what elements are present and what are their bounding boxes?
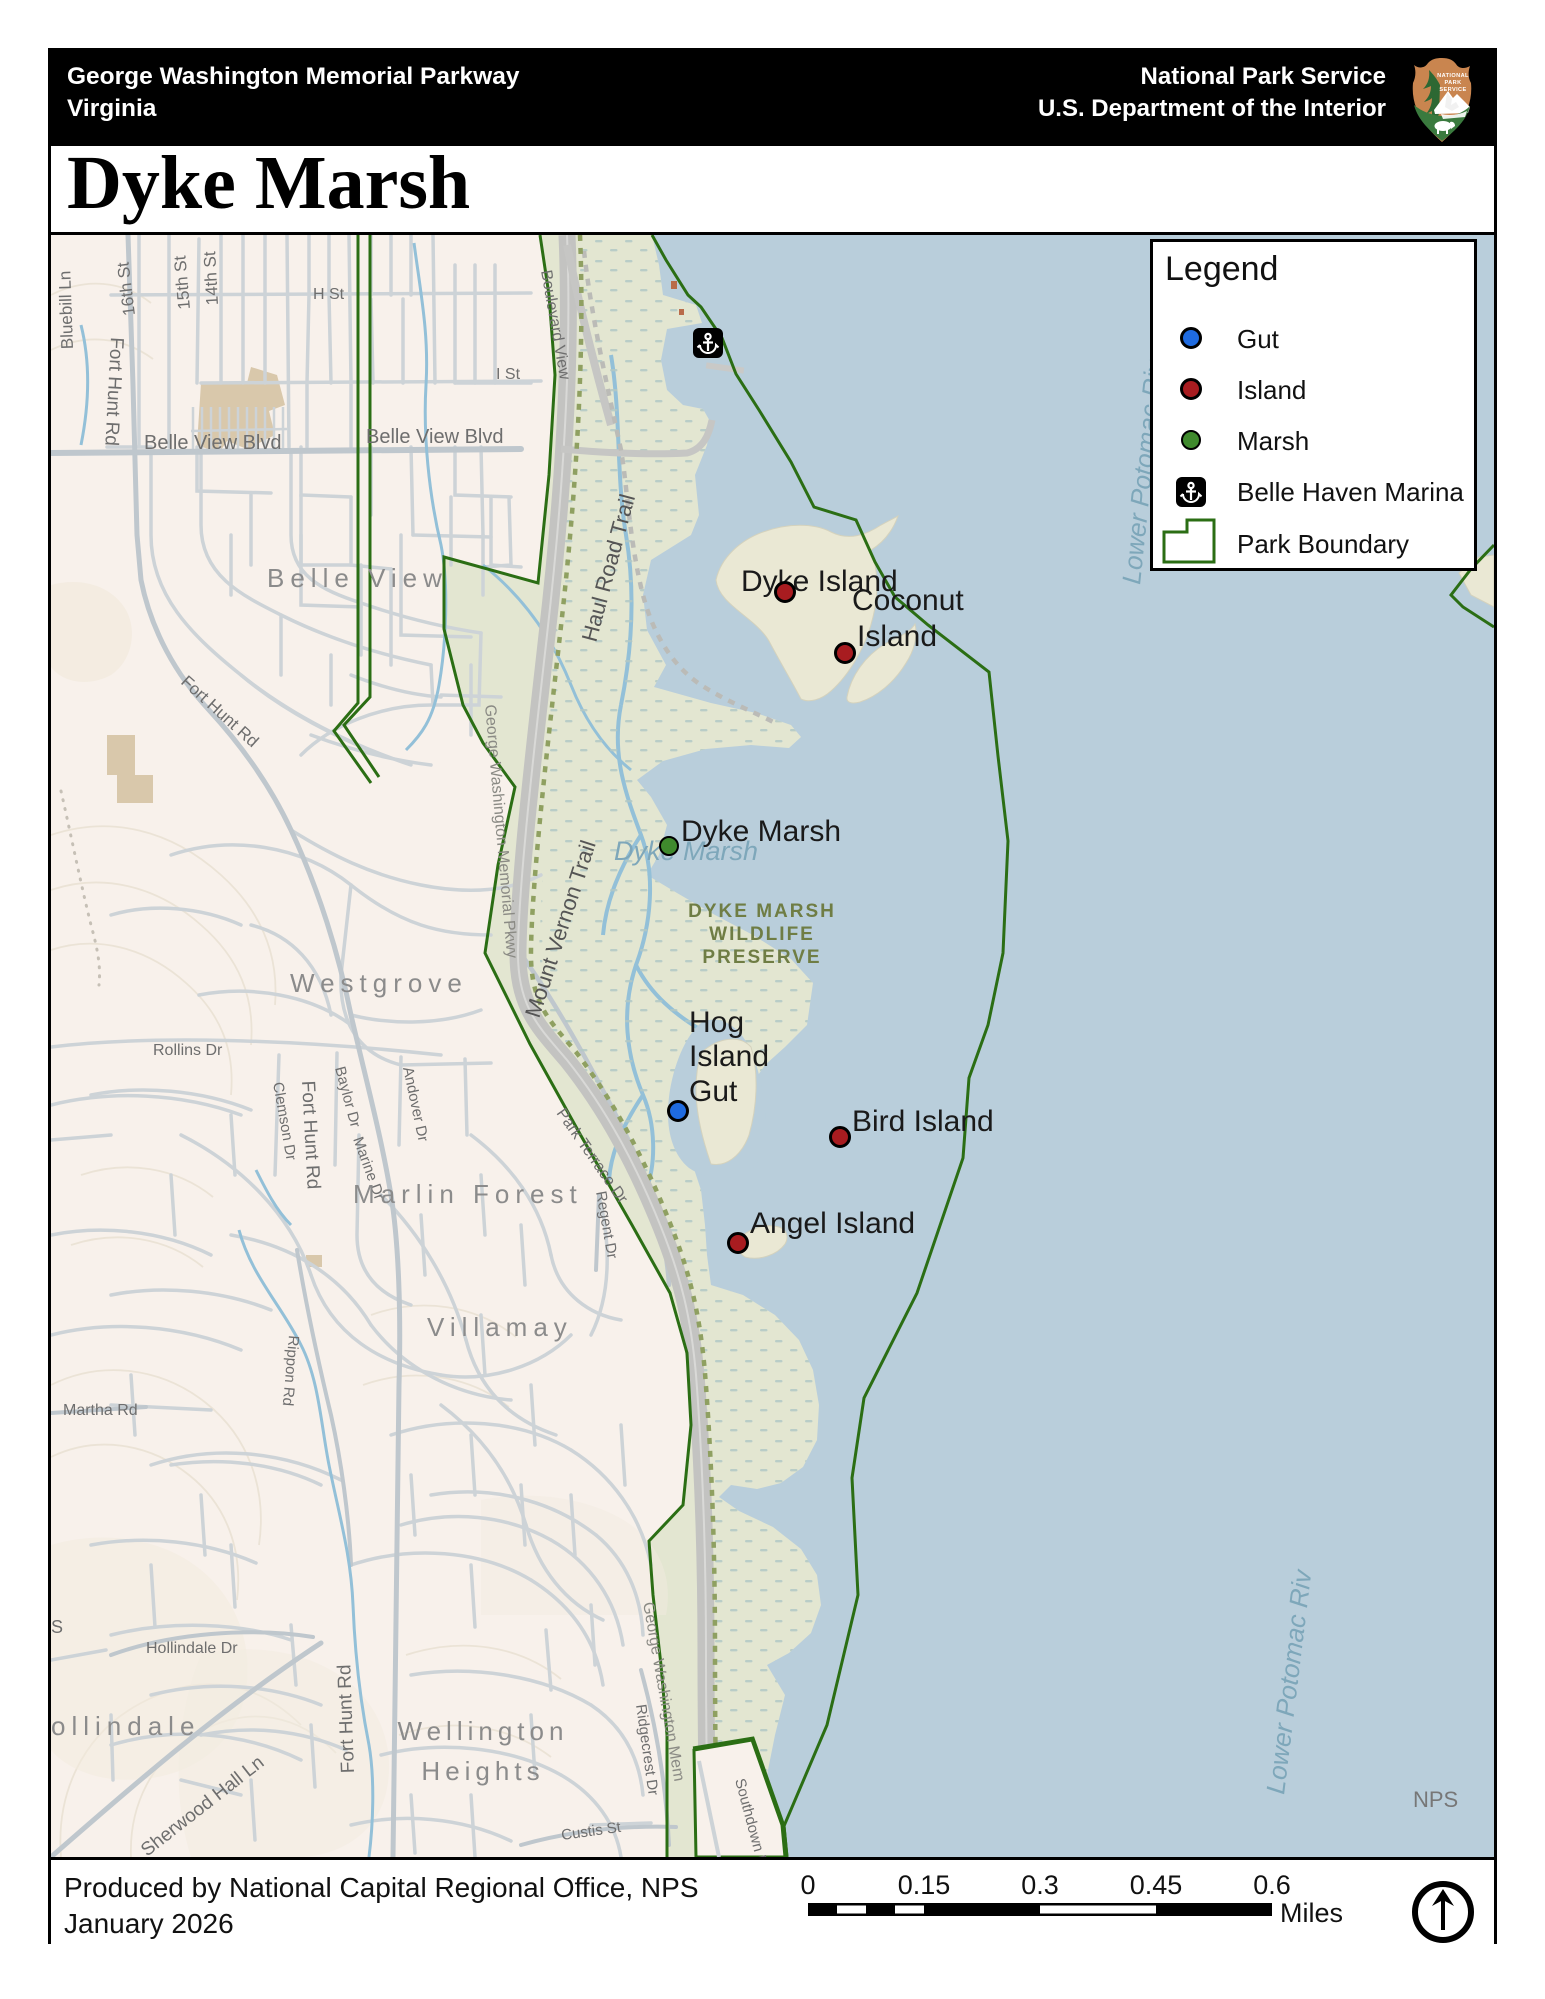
svg-text:Villamay: Villamay <box>427 1312 573 1342</box>
svg-text:Belle View Blvd: Belle View Blvd <box>366 426 503 448</box>
svg-text:DYKE MARSH: DYKE MARSH <box>688 901 836 922</box>
svg-text:0.3: 0.3 <box>1021 1870 1059 1900</box>
svg-text:14th St: 14th St <box>200 251 222 306</box>
svg-text:Island: Island <box>857 620 937 653</box>
svg-text:0.15: 0.15 <box>898 1870 951 1900</box>
svg-text:Martha Rd: Martha Rd <box>63 1402 138 1419</box>
svg-text:Gut: Gut <box>689 1075 738 1108</box>
svg-text:0.45: 0.45 <box>1130 1870 1183 1900</box>
svg-text:Wellington: Wellington <box>398 1716 569 1746</box>
svg-text:0: 0 <box>800 1870 815 1900</box>
svg-text:Belle View: Belle View <box>267 563 448 593</box>
svg-text:Marlin Forest: Marlin Forest <box>353 1179 583 1209</box>
svg-text:S: S <box>51 1617 63 1637</box>
svg-text:Fort Hunt Rd: Fort Hunt Rd <box>334 1664 359 1773</box>
svg-text:H St: H St <box>313 286 345 303</box>
svg-text:0.6: 0.6 <box>1253 1870 1291 1900</box>
svg-text:Rollins Dr: Rollins Dr <box>153 1042 223 1059</box>
svg-text:ollindale: ollindale <box>51 1711 200 1741</box>
svg-text:Heights: Heights <box>421 1756 544 1786</box>
svg-text:I St: I St <box>496 366 521 383</box>
svg-text:Hog: Hog <box>689 1006 744 1039</box>
svg-text:Coconut: Coconut <box>852 584 964 617</box>
svg-text:Angel Island: Angel Island <box>750 1207 915 1240</box>
svg-text:Miles: Miles <box>1280 1898 1343 1928</box>
svg-text:SERVICE: SERVICE <box>1439 87 1466 93</box>
svg-text:PARK: PARK <box>1444 80 1461 86</box>
svg-text:Bluebill Ln: Bluebill Ln <box>55 270 77 349</box>
svg-text:Dyke Marsh: Dyke Marsh <box>681 815 841 848</box>
svg-text:NATIONAL: NATIONAL <box>1437 73 1469 79</box>
svg-text:Island: Island <box>689 1040 769 1073</box>
svg-text:NPS: NPS <box>1413 1787 1458 1812</box>
svg-text:Belle View Blvd: Belle View Blvd <box>144 432 281 454</box>
svg-text:Bird Island: Bird Island <box>852 1105 994 1138</box>
svg-text:WILDLIFE: WILDLIFE <box>709 924 815 945</box>
svg-text:Westgrove: Westgrove <box>290 968 468 998</box>
svg-text:Lower Potomac Riv: Lower Potomac Riv <box>1260 1566 1317 1795</box>
svg-text:Hollindale Dr: Hollindale Dr <box>146 1640 238 1657</box>
svg-text:PRESERVE: PRESERVE <box>702 947 821 968</box>
